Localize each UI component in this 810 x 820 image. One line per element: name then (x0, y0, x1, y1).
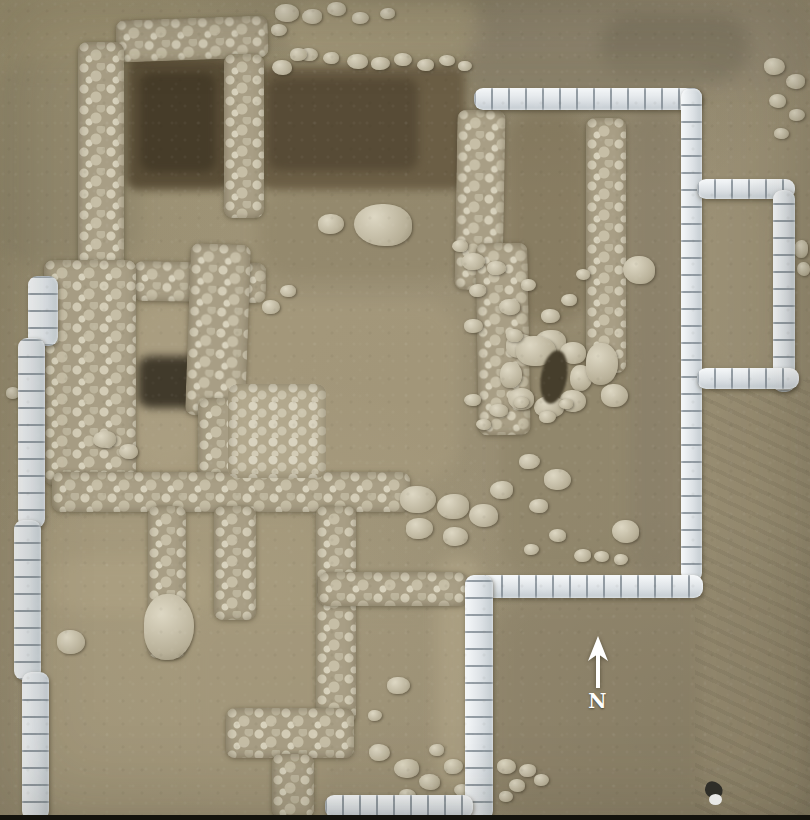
rubble-stone (559, 399, 573, 409)
sandbag-wall-box-bottom (697, 368, 799, 389)
rubble-stone (519, 764, 536, 777)
sandbag-wall-west-1 (28, 276, 58, 346)
rubble-stone (489, 404, 508, 417)
rubble-stone (764, 58, 785, 75)
stone-wall-south-horizontal (226, 708, 354, 758)
rubble-stone (497, 759, 516, 774)
rubble-stone (443, 527, 468, 546)
rubble-stone (769, 94, 786, 108)
rubble-stone (623, 256, 655, 284)
rubble-stone (601, 384, 628, 407)
rubble-stone (476, 419, 491, 430)
rubble-stone (469, 284, 486, 297)
stone-wall-room-right (224, 54, 264, 218)
rubble-stone (539, 411, 556, 423)
rubble-stone (576, 269, 590, 280)
rubble-stone (544, 469, 571, 490)
sandbag-wall-west-3 (14, 520, 41, 680)
rubble-stone (354, 204, 412, 246)
rubble-stone (469, 504, 498, 527)
rubble-stone (439, 55, 455, 66)
rubble-stone (400, 486, 436, 513)
north-label: N (572, 689, 624, 713)
north-arrow-icon (585, 636, 611, 688)
sandbag-wall-north (474, 88, 702, 110)
photo-edge-strip (0, 815, 810, 820)
rubble-stone (429, 744, 444, 756)
rubble-stone (458, 61, 472, 71)
rubble-stone (57, 630, 85, 654)
stone-wall-south-3 (316, 506, 356, 724)
rubble-stone (529, 499, 548, 513)
rubble-stone (262, 300, 280, 314)
sandbag-wall-south-vertical (465, 575, 493, 820)
stone-wall-step-west (318, 572, 468, 606)
rubble-stone (327, 2, 346, 16)
stone-wall-east-inner (586, 118, 626, 373)
excavation-aerial-photo: N (0, 0, 810, 820)
excavation-pit-east-core (268, 78, 418, 170)
soil-patch-trench-east (626, 108, 684, 578)
rubble-stone (549, 529, 566, 542)
rubble-stone (464, 319, 483, 333)
north-indicator: N (572, 636, 624, 713)
rubble-stone (406, 518, 433, 539)
rubble-stone (574, 549, 591, 562)
sandbag-wall-east-main (681, 88, 702, 582)
sandbag-wall-step (467, 575, 703, 598)
rubble-stone (302, 9, 322, 24)
rubble-stone (437, 494, 469, 519)
rubble-stone (490, 481, 513, 499)
rubble-stone (487, 261, 506, 275)
rubble-stone (464, 394, 481, 406)
rubble-stone (394, 759, 419, 778)
rubble-stone (368, 710, 382, 721)
stone-wall-room-left (78, 42, 124, 272)
rubble-stone (614, 554, 628, 565)
rubble-stone (271, 24, 287, 36)
rubble-stone (369, 744, 390, 761)
rubble-stone (506, 329, 523, 342)
rubble-stone (419, 774, 440, 790)
excavation-pit-room-core (140, 72, 216, 172)
rubble-stone (93, 431, 116, 448)
rubble-stone (347, 54, 368, 69)
rubble-stone (789, 109, 805, 121)
soil-streaks-rightmargin (695, 380, 810, 820)
rubble-stone (394, 53, 412, 66)
stone-wall-south-2 (214, 506, 256, 620)
stone-pavement (228, 384, 326, 478)
rubble-stone (541, 309, 560, 323)
rubble-stone (417, 59, 434, 71)
rubble-stone (774, 128, 789, 139)
rubble-stone (612, 520, 639, 543)
rubble-stone (323, 52, 339, 64)
rubble-stone (561, 294, 577, 306)
sandbag-wall-box-east (773, 190, 795, 392)
rubble-stone (275, 4, 299, 22)
rubble-stone (352, 12, 369, 24)
soil-patch-inside-box (700, 202, 776, 370)
survey-marker-cap (709, 794, 722, 805)
sandbag-wall-west-2 (18, 338, 45, 528)
stone-wall-south-stub (272, 754, 314, 818)
rubble-stone (509, 779, 525, 792)
sandbag-wall-west-4 (22, 672, 49, 820)
rubble-stone (499, 791, 513, 802)
rubble-stone (786, 74, 805, 89)
rubble-stone (119, 444, 138, 459)
rubble-stone (499, 299, 520, 315)
rubble-stone (594, 551, 609, 562)
rubble-stone (272, 60, 292, 75)
rubble-stone (380, 8, 395, 19)
rubble-stone (280, 285, 296, 297)
rubble-stone (452, 240, 468, 252)
rubble-stone (797, 262, 810, 276)
rubble-stone (794, 240, 808, 258)
